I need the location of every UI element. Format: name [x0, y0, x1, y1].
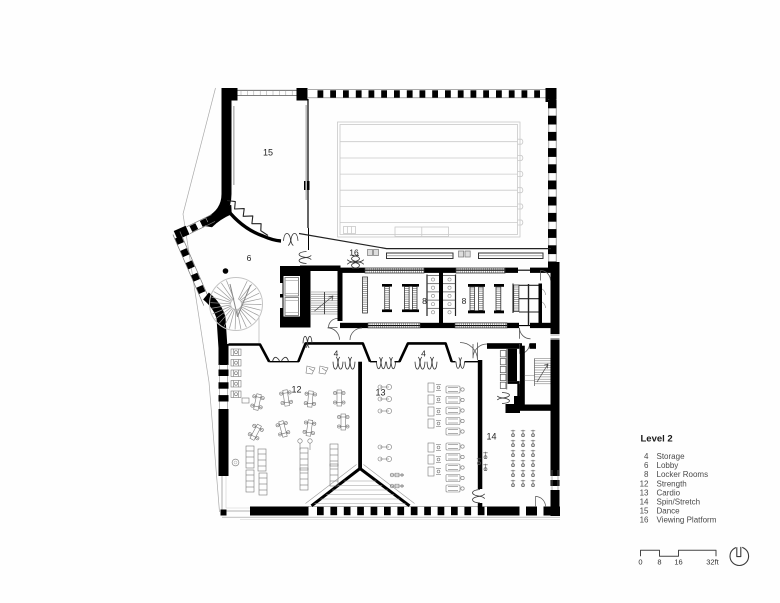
svg-text:Spin/Stretch: Spin/Stretch: [657, 498, 701, 507]
svg-text:13: 13: [640, 488, 649, 497]
svg-text:Locker Rooms: Locker Rooms: [657, 470, 709, 479]
svg-text:14: 14: [640, 498, 649, 507]
svg-text:0: 0: [638, 558, 642, 567]
svg-text:16: 16: [640, 516, 649, 525]
svg-text:Viewing Platform: Viewing Platform: [657, 516, 717, 525]
svg-text:4: 4: [421, 349, 426, 359]
svg-text:Dance: Dance: [657, 507, 681, 516]
svg-text:4: 4: [644, 452, 649, 461]
svg-text:12: 12: [291, 385, 301, 395]
svg-text:8: 8: [644, 470, 649, 479]
svg-text:Storage: Storage: [657, 452, 686, 461]
svg-text:8: 8: [462, 296, 467, 306]
svg-text:4: 4: [334, 349, 339, 359]
svg-text:6: 6: [644, 461, 649, 470]
svg-text:6: 6: [247, 253, 252, 263]
svg-text:Strength: Strength: [657, 479, 687, 488]
svg-text:8: 8: [422, 296, 427, 306]
svg-text:8: 8: [657, 558, 661, 567]
svg-text:14: 14: [486, 432, 496, 442]
svg-text:12: 12: [640, 479, 649, 488]
svg-text:16: 16: [674, 558, 682, 567]
svg-text:15: 15: [263, 148, 273, 158]
svg-text:Cardio: Cardio: [657, 488, 681, 497]
svg-text:16: 16: [349, 248, 359, 258]
svg-text:Lobby: Lobby: [657, 461, 679, 470]
svg-text:15: 15: [640, 507, 649, 516]
svg-text:32ft: 32ft: [706, 558, 719, 567]
svg-text:Level 2: Level 2: [641, 434, 673, 445]
